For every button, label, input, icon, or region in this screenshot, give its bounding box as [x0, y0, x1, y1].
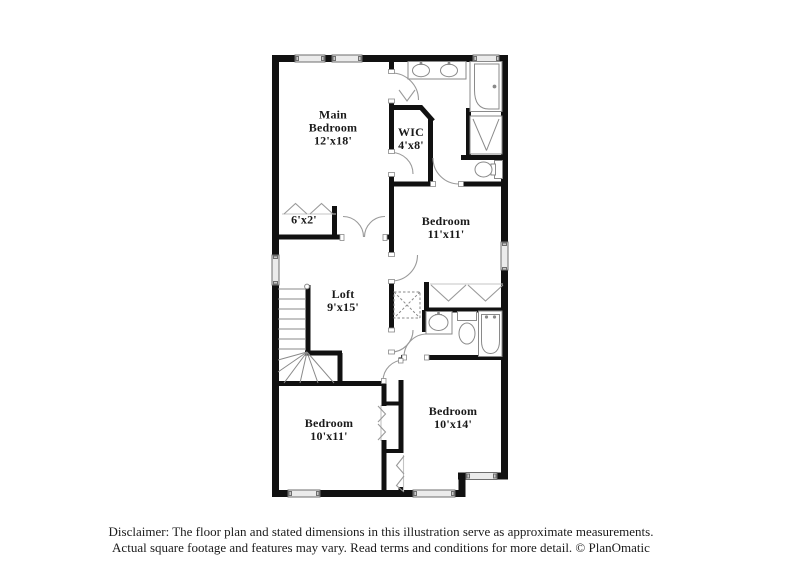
window — [466, 473, 497, 480]
bifold-chevron — [468, 285, 503, 301]
room-label-wic: WIC 4'x8' — [398, 126, 424, 152]
window — [295, 55, 325, 62]
room-label-main-bedroom: Main Bedroom 12'x18' — [296, 109, 370, 148]
toilet-icon — [458, 312, 477, 345]
bath2-fixtures — [394, 292, 502, 357]
window — [288, 490, 320, 497]
double-vanity-icon — [408, 62, 466, 80]
room-dimensions: 6'x2' — [291, 214, 317, 227]
vanity-sink-icon — [426, 312, 452, 335]
window — [473, 55, 499, 62]
disclaimer-line-1: Disclaimer: The floor plan and stated di… — [41, 524, 721, 540]
door-arc — [343, 217, 364, 238]
window — [413, 490, 455, 497]
door-arc — [365, 217, 386, 238]
room-label-bedroom-10x11: Bedroom 10'x11' — [305, 417, 354, 443]
room-label-loft: Loft 9'x15' — [327, 288, 359, 314]
bathtub-icon — [479, 311, 503, 357]
floor-plan-page: Main Bedroom 12'x18' WIC 4'x8' 6'x2' Bed… — [0, 0, 800, 582]
room-label-bedroom-10x14: Bedroom 10'x14' — [429, 405, 478, 431]
bifold-chevron — [378, 406, 386, 422]
door-arc — [391, 330, 413, 352]
linen-closet-icon — [394, 292, 420, 318]
toilet-icon — [475, 161, 503, 179]
bathtub-icon — [470, 62, 502, 112]
window — [272, 255, 279, 285]
bifold-chevron — [378, 424, 386, 440]
door-arc — [404, 334, 427, 358]
door-arc — [392, 153, 414, 175]
floor-plan-drawing — [0, 0, 800, 582]
window — [501, 242, 508, 270]
small-door-chevron — [399, 90, 415, 101]
room-dimensions: 10'x14' — [429, 418, 478, 431]
room-dimensions: 10'x11' — [305, 430, 354, 443]
room-dimensions: 4'x8' — [398, 139, 424, 152]
bifold-chevron — [431, 285, 466, 301]
door-arc — [392, 255, 418, 281]
disclaimer: Disclaimer: The floor plan and stated di… — [41, 524, 721, 556]
room-label-closet-6x2: 6'x2' — [291, 214, 317, 227]
room-dimensions: 11'x11' — [422, 228, 471, 241]
room-dimensions: 12'x18' — [296, 135, 370, 148]
room-name: Main Bedroom — [296, 109, 370, 135]
door-arc — [433, 158, 459, 184]
room-label-bedroom-11x11: Bedroom 11'x11' — [422, 215, 471, 241]
shower-icon — [470, 116, 502, 154]
room-dimensions: 9'x15' — [327, 301, 359, 314]
bath1-fixtures — [408, 62, 503, 179]
bifold-chevron — [397, 456, 405, 474]
window — [332, 55, 362, 62]
disclaimer-line-2: Actual square footage and features may v… — [41, 540, 721, 556]
